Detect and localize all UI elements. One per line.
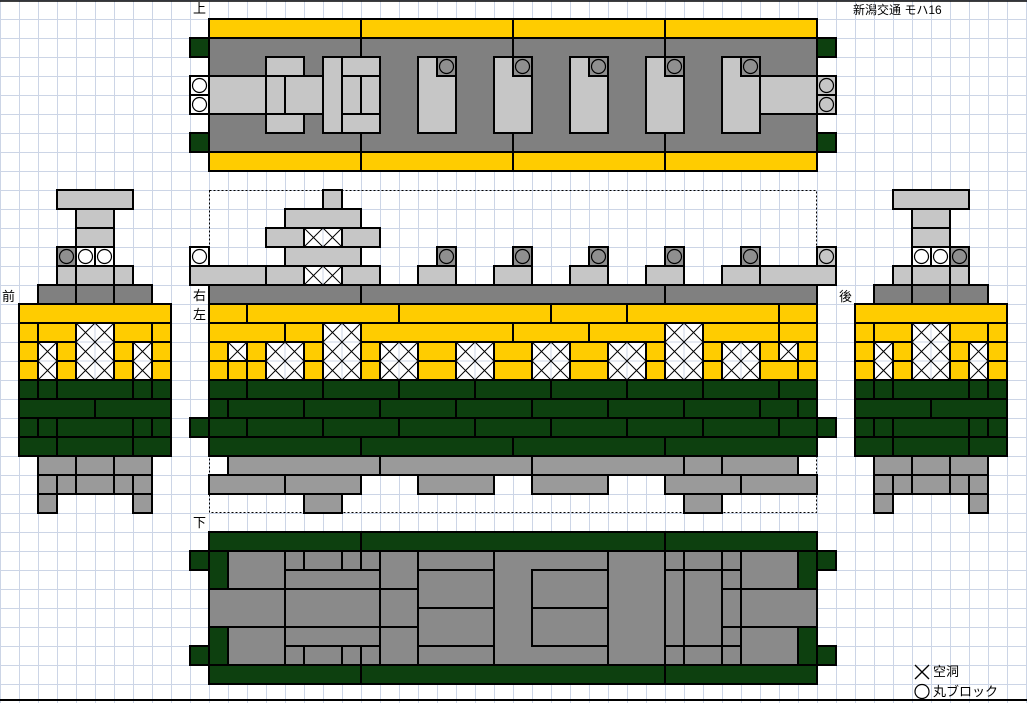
view-label-rear: 後	[839, 289, 852, 304]
legend-round-block-label: 丸ブロック	[933, 684, 998, 699]
blueprint-canvas	[0, 0, 1027, 703]
view-label-front: 前	[2, 289, 15, 304]
legend-hollow-label: 空洞	[933, 664, 959, 679]
page-title: 新潟交通 モハ16	[853, 3, 942, 18]
view-label-right: 右	[193, 288, 206, 303]
view-label-bottom: 下	[193, 515, 206, 530]
view-label-left: 左	[193, 307, 206, 322]
view-label-top: 上	[193, 1, 206, 16]
blueprint-page: 新潟交通 モハ16 上 前 右 左 後 下 空洞 丸ブロック	[0, 0, 1027, 703]
